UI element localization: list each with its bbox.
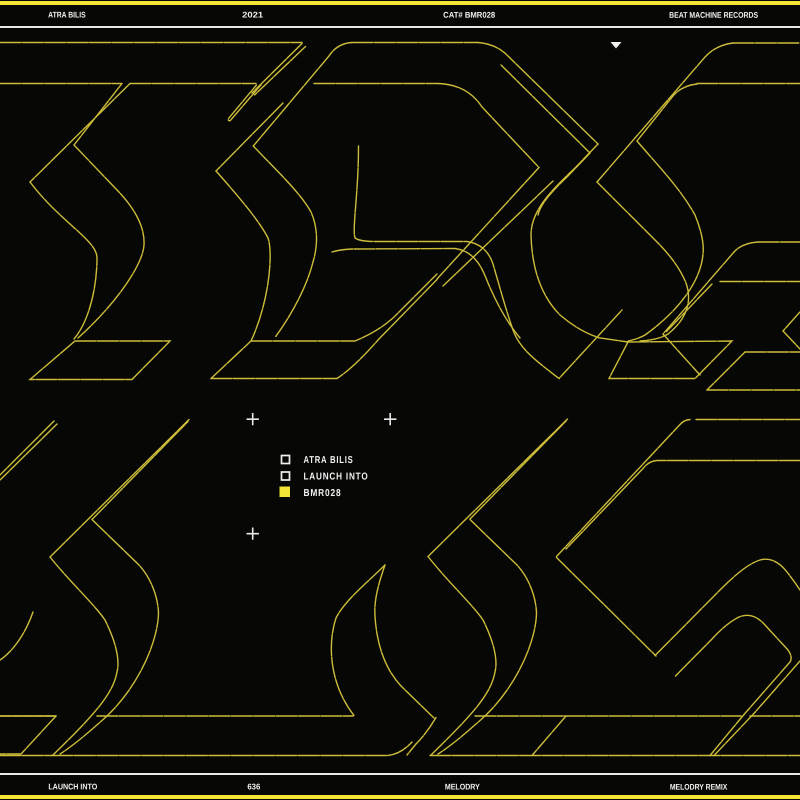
- svg-text:MELODRY: MELODRY: [445, 783, 480, 792]
- svg-text:ATRA BILIS: ATRA BILIS: [304, 455, 354, 466]
- svg-text:BMR028: BMR028: [303, 488, 341, 499]
- svg-text:BEAT MACHINE RECORDS: BEAT MACHINE RECORDS: [669, 11, 758, 20]
- svg-text:ATRA BILIS: ATRA BILIS: [48, 10, 86, 19]
- svg-text:636: 636: [247, 782, 260, 791]
- svg-text:2021: 2021: [242, 11, 264, 20]
- svg-text:MELODRY REMIX: MELODRY REMIX: [670, 783, 728, 792]
- svg-text:LAUNCH INTO: LAUNCH INTO: [303, 471, 368, 482]
- svg-text:LAUNCH INTO: LAUNCH INTO: [48, 782, 98, 791]
- svg-text:CAT# BMR028: CAT# BMR028: [443, 11, 495, 20]
